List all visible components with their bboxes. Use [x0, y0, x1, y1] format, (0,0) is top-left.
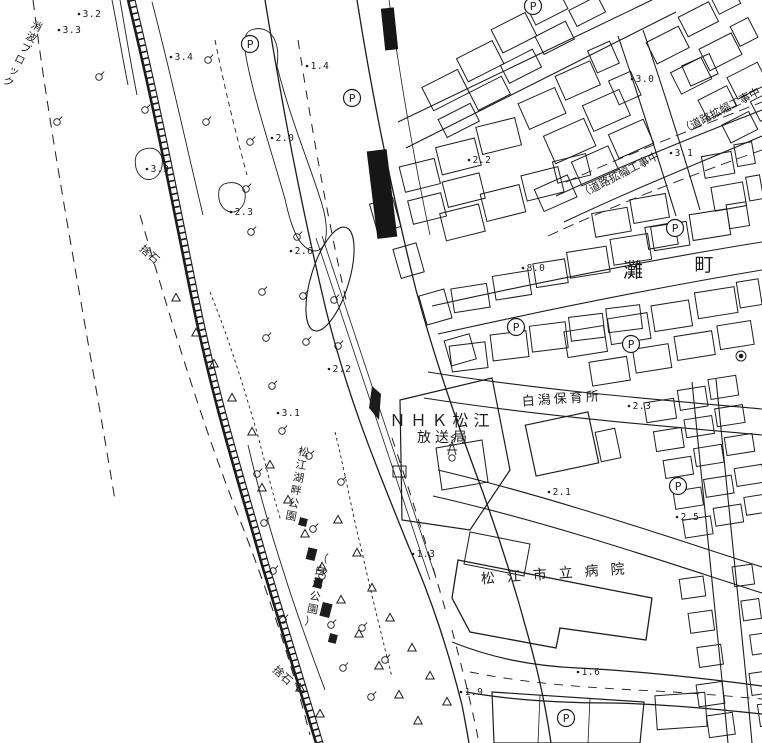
- map-label-nursery-school: 白潟保育所: [521, 388, 602, 410]
- parking-icon: P: [525, 0, 542, 15]
- svg-text:P: P: [675, 480, 682, 493]
- slope-triangle-icon: [395, 690, 403, 698]
- svg-text:3.1: 3.1: [675, 148, 694, 159]
- parking-icon: P: [242, 36, 259, 53]
- map-label-district-nada: 灘: [623, 258, 643, 282]
- buildings-layer: [367, 0, 762, 743]
- traffic-island-arrow: [369, 386, 381, 420]
- street-d-edge1: [438, 470, 762, 567]
- parking-icon: P: [558, 710, 575, 727]
- svg-text:3.2: 3.2: [83, 9, 102, 20]
- svg-text:2.3: 2.3: [633, 401, 652, 412]
- spot-elevation: 2.1: [548, 487, 572, 498]
- bottom-street-dash: [470, 672, 762, 699]
- spot-elevation: 3.3: [58, 25, 82, 36]
- svg-text:2.5: 2.5: [681, 512, 700, 523]
- spot-elevation: 2.5: [676, 512, 700, 523]
- bottom-street-top-edge: [452, 642, 762, 686]
- tree-icon: [338, 477, 347, 486]
- tree-icon: [359, 623, 368, 632]
- svg-text:P: P: [672, 222, 679, 235]
- svg-text:P: P: [530, 0, 537, 13]
- nursery-annex: [595, 428, 621, 462]
- tree-icon: [243, 184, 252, 193]
- map-label-nhk-line1: ＮＨＫ松江: [389, 411, 494, 430]
- spot-elevation: 3.4: [170, 52, 194, 63]
- spot-elevation: 8.0: [522, 263, 546, 274]
- svg-text:P: P: [513, 321, 520, 334]
- building-block: [584, 141, 762, 258]
- svg-text:3.3: 3.3: [151, 164, 170, 175]
- parking-icon: P: [670, 478, 687, 495]
- spot-elevation: 2.2: [328, 364, 352, 375]
- tree-icon: [203, 117, 212, 126]
- svg-text:2.2: 2.2: [473, 155, 492, 166]
- bottom-street-bottom-edge: [466, 692, 762, 714]
- bottom-street-layer: [452, 642, 762, 714]
- map-label-city-hospital: 松江市立病院: [480, 560, 637, 588]
- svg-text:8.0: 8.0: [527, 263, 546, 274]
- spot-elevation: 2.3: [628, 401, 652, 412]
- parking-icon: P: [623, 336, 640, 353]
- svg-text:P: P: [349, 92, 356, 105]
- map-label-district-machi: 町: [694, 254, 713, 276]
- tree-icon: [247, 137, 256, 146]
- tree-icon: [328, 620, 337, 629]
- building-block: [405, 0, 630, 137]
- tree-icon: [248, 227, 257, 236]
- spot-elevation: 3.1: [277, 408, 301, 419]
- water-edge-dashed-lower: [140, 215, 310, 735]
- tree-icon: [279, 426, 288, 435]
- road-center-dash-1: [298, 40, 346, 300]
- bank-line-inner: [135, 0, 323, 743]
- slope-triangle-icon: [426, 671, 434, 679]
- map-labels-layer: 消波ブロック捨石捨石松江湖畔公園（白潟公園）ＮＨＫ松江放送局白潟保育所松江市立病…: [1, 18, 762, 688]
- slope-triangle-icon: [266, 460, 274, 468]
- map-label-kohan-park: 松江湖畔公園: [285, 444, 311, 524]
- map-label-riprap-upper: 捨石: [137, 241, 163, 266]
- slope-triangle-icon: [301, 529, 309, 537]
- tree-icon: [54, 117, 63, 126]
- map-label-breakwater-blocks: 消波ブロック: [1, 18, 45, 90]
- nhk-building: [436, 440, 488, 490]
- river-bank-layer: [33, 0, 323, 743]
- map-label-shiragata-park: （白潟公園）: [304, 551, 330, 630]
- map-canvas[interactable]: PPPPPPPP 3.23.33.41.42.03.32.32.62.23.03…: [0, 0, 762, 743]
- spot-elevation: 3.3: [146, 164, 170, 175]
- tree-icon: [263, 333, 272, 342]
- street-b-edge2: [438, 270, 762, 334]
- svg-text:1.4: 1.4: [311, 61, 330, 72]
- svg-text:3.3: 3.3: [63, 25, 82, 36]
- svg-text:P: P: [628, 338, 635, 351]
- map-label-nhk-line2: 放送局: [417, 430, 471, 446]
- monument-icon: [736, 351, 746, 361]
- svg-text:1.6: 1.6: [582, 667, 601, 678]
- slope-triangle-icon: [414, 716, 422, 724]
- spot-elevation: 1.4: [306, 61, 330, 72]
- slope-triangle-icon: [355, 629, 363, 637]
- svg-text:1.3: 1.3: [417, 549, 436, 560]
- slope-triangle-icon: [172, 293, 180, 301]
- slope-triangle-icon: [375, 661, 383, 669]
- map-viewport: PPPPPPPP 3.23.33.41.42.03.32.32.62.23.03…: [0, 0, 762, 743]
- parking-icon: P: [508, 319, 525, 336]
- tree-icon: [96, 72, 105, 81]
- tree-icon: [259, 287, 268, 296]
- symbols-layer: PPPPPPPP: [54, 0, 687, 727]
- water-edge-dashed-upper: [33, 0, 115, 500]
- tree-icon: [303, 337, 312, 346]
- svg-text:2.3: 2.3: [235, 207, 254, 218]
- tree-icon: [142, 105, 151, 114]
- slope-triangle-icon: [386, 613, 394, 621]
- svg-text:P: P: [247, 38, 254, 51]
- svg-text:3.0: 3.0: [636, 74, 655, 85]
- building-block: [642, 373, 762, 542]
- tree-icon: [382, 655, 391, 664]
- parking-icon: P: [667, 220, 684, 237]
- svg-text:3.1: 3.1: [282, 408, 301, 419]
- tree-icon: [368, 692, 377, 701]
- svg-text:P: P: [563, 712, 570, 725]
- slope-triangle-icon: [316, 709, 324, 717]
- spot-elevation: 2.2: [468, 155, 492, 166]
- spot-elevation: 1.3: [412, 549, 436, 560]
- slope-triangle-icon: [443, 697, 451, 705]
- tree-icon: [310, 524, 319, 533]
- tree-icon: [269, 381, 278, 390]
- park-walk-upper: [215, 40, 247, 175]
- main-road-layer: [265, 0, 551, 743]
- nhk-grounds: [400, 378, 510, 530]
- spot-elevation: 3.2: [78, 9, 102, 20]
- parking-icon: P: [344, 90, 361, 107]
- tree-icon: [205, 55, 214, 64]
- svg-text:1.9: 1.9: [465, 687, 484, 698]
- svg-text:3.4: 3.4: [175, 52, 194, 63]
- street-a-edge1: [398, 0, 652, 122]
- spot-elevation: 2.3: [230, 207, 254, 218]
- bank-line-outer: [128, 0, 316, 743]
- map-label-roadwork-upper: （道路拡幅工事中: [678, 84, 762, 136]
- slope-triangle-icon: [337, 595, 345, 603]
- svg-text:2.0: 2.0: [276, 133, 295, 144]
- slope-triangle-icon: [248, 427, 256, 435]
- svg-text:2.2: 2.2: [333, 364, 352, 375]
- spot-elevation: 1.9: [460, 687, 484, 698]
- nursery-building: [525, 412, 598, 476]
- bottom-building-small: [655, 692, 707, 729]
- bank-line-top-extra1: [112, 0, 128, 85]
- street-f-edge1: [618, 36, 676, 216]
- spot-elevation: 3.1: [670, 148, 694, 159]
- building-block: [445, 202, 762, 406]
- tree-icon: [340, 663, 349, 672]
- park-contour-low: [335, 432, 392, 677]
- building-block: [447, 305, 645, 372]
- spot-elevation: 2.6: [290, 246, 314, 257]
- bank-hatch-band: [131, 0, 319, 743]
- slope-triangle-icon: [408, 643, 416, 651]
- slope-triangle-icon: [334, 515, 342, 523]
- svg-text:2.6: 2.6: [295, 246, 314, 257]
- slope-triangle-icon: [353, 548, 361, 556]
- slope-triangle-icon: [228, 393, 236, 401]
- spot-elevation: 2.0: [271, 133, 295, 144]
- svg-text:2.1: 2.1: [553, 487, 572, 498]
